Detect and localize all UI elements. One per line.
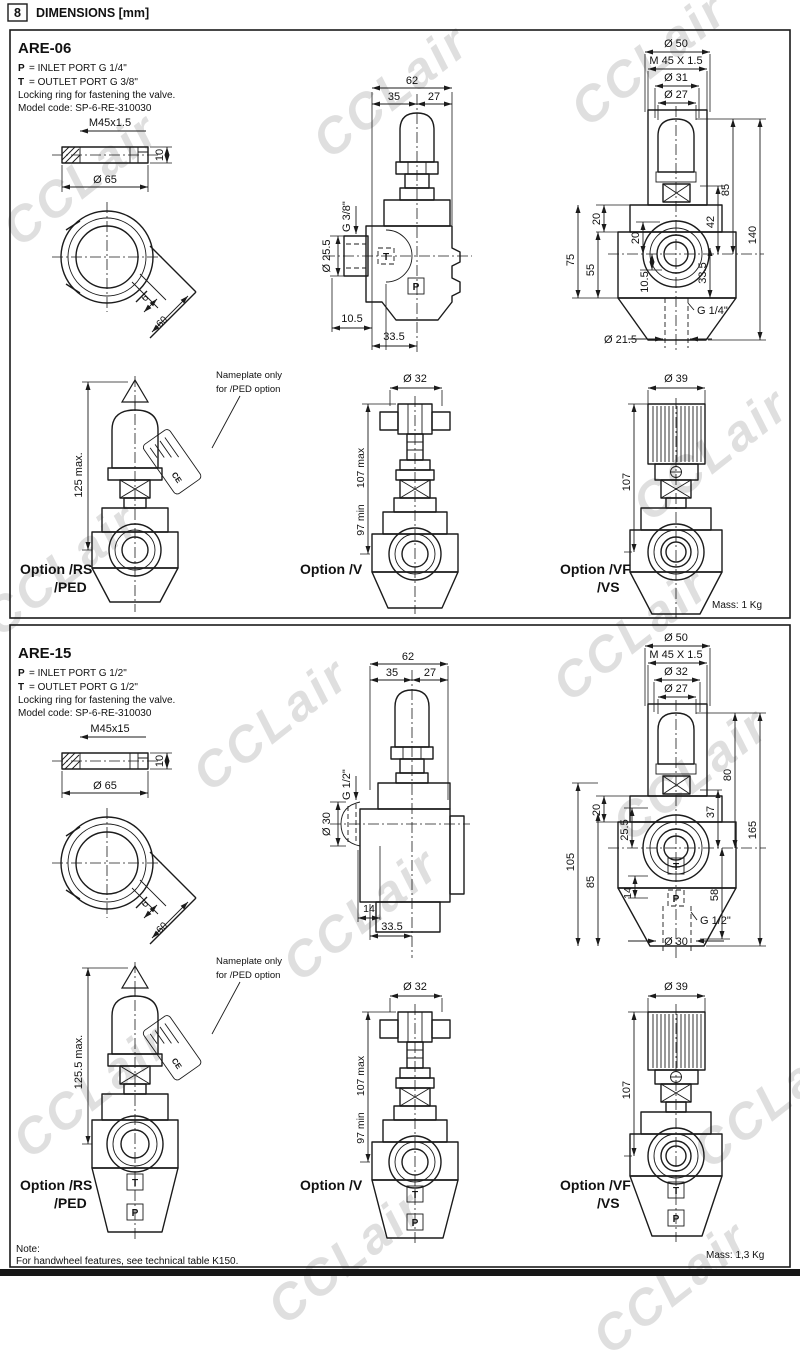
- dim-label: 85: [585, 876, 597, 888]
- dim-label: Ø 32: [403, 981, 427, 993]
- dim-label: 107: [621, 473, 633, 491]
- are15-option-rs-view: T P CE Nameplate only for /PED option 12…: [20, 956, 282, 1240]
- nameplate-callout: for /PED option: [216, 970, 280, 981]
- option-label: Option /V: [300, 561, 363, 577]
- dim-label: Ø 31: [664, 72, 688, 84]
- dim-label: 107 max: [355, 447, 367, 488]
- are06-side-view: 62 35 27 T P G 3/8" Ø 25.5 10.5 33.5: [321, 75, 472, 352]
- dim-label: Ø 30: [321, 812, 333, 836]
- dim-label: Ø 25.5: [321, 239, 333, 272]
- dim-label: Ø 30: [664, 936, 688, 948]
- dim-label: M45x15: [90, 723, 129, 735]
- dim-label: 140: [747, 226, 759, 244]
- dim-label: 27: [428, 91, 440, 103]
- port-t-key: T: [18, 77, 24, 88]
- dim-label: Ø 39: [664, 981, 688, 993]
- are06-option-v-view: Ø 32 107 max 97 min Option /V: [300, 373, 458, 614]
- are15-front-view: Ø 50 M 45 X 1.5 Ø 32 Ø 27 T P 80 37 16: [565, 632, 766, 958]
- dim-label: 10.5: [341, 313, 362, 325]
- dim-label: Ø 50: [664, 632, 688, 644]
- nameplate-callout: for /PED option: [216, 384, 280, 395]
- dim-label: M 45 X 1.5: [649, 55, 702, 67]
- option-label: Option /VF: [560, 561, 631, 577]
- dim-label: 107 max: [355, 1055, 367, 1096]
- are06-option-rs-view: CE Nameplate only for /PED option 125 ma…: [20, 370, 282, 612]
- port-p-symbol: P: [413, 282, 420, 293]
- option-label: /PED: [54, 579, 87, 595]
- dim-label: 80: [722, 769, 734, 781]
- dim-label: 37: [705, 806, 717, 818]
- model-code: Model code: SP-6-RE-310030: [18, 103, 152, 114]
- are15-ring-side-view: M45x15 Ø 65 10: [52, 723, 172, 798]
- port-t-symbol: T: [383, 252, 389, 263]
- are06-option-vf-view: Ø 39 107 Option /VF /VS Mass: 1 Kg: [560, 373, 762, 620]
- nameplate: CE: [142, 428, 203, 496]
- dim-label: 25.5: [619, 819, 631, 840]
- dim-label: 58: [709, 889, 721, 901]
- option-label: /VS: [597, 1195, 620, 1211]
- mass-label: Mass: 1,3 Kg: [706, 1250, 764, 1261]
- mass-label: Mass: 1 Kg: [712, 600, 762, 611]
- dim-label: G 3/8": [341, 201, 353, 232]
- dim-label: 20: [591, 213, 603, 225]
- nameplate: CE: [142, 1014, 203, 1082]
- option-label: Option /RS: [20, 561, 92, 577]
- bottom-note: Note: For handwheel features, see techni…: [16, 1244, 238, 1267]
- dim-label: 97 min: [355, 504, 367, 536]
- dim-label: 35: [386, 667, 398, 679]
- dim-label: 14: [363, 903, 375, 915]
- dim-label: 125 max.: [73, 452, 85, 497]
- page-bottom-bar: [0, 1269, 800, 1276]
- option-label: /VS: [597, 579, 620, 595]
- are06-ring-side-view: M45x1.5 Ø 65 10: [52, 117, 172, 192]
- nameplate-ce-mark: CE: [170, 471, 184, 486]
- port-p-symbol: P: [132, 1208, 139, 1219]
- dim-label: 55: [585, 264, 597, 276]
- dim-label: Ø 27: [664, 89, 688, 101]
- are15-title: ARE-15: [18, 645, 71, 662]
- port-t-desc: = OUTLET PORT G 3/8": [29, 77, 138, 88]
- dim-label: Ø 65: [93, 780, 117, 792]
- dim-label: 125.5 max.: [73, 1035, 85, 1089]
- are06-header-text: ARE-06 P = INLET PORT G 1/4" T = OUTLET …: [18, 40, 175, 114]
- are15-header-text: ARE-15 P = INLET PORT G 1/2" T = OUTLET …: [18, 645, 175, 719]
- option-label: Option /VF: [560, 1177, 631, 1193]
- dim-label: 105: [565, 853, 577, 871]
- port-t-key: T: [18, 682, 24, 693]
- dim-label: 33.5: [381, 921, 402, 933]
- port-t-symbol: T: [132, 1178, 138, 1189]
- dim-label: 75: [565, 254, 577, 266]
- port-p-symbol: P: [673, 894, 680, 905]
- dim-label: Ø 32: [403, 373, 427, 385]
- dim-label: 33.5: [383, 331, 404, 343]
- are15-ring-front-view: 6 60: [52, 808, 196, 944]
- dim-label: 35: [388, 91, 400, 103]
- nameplate-callout: Nameplate only: [216, 370, 282, 381]
- port-p-desc: = INLET PORT G 1/4": [29, 63, 127, 74]
- dim-label: Ø 32: [664, 666, 688, 678]
- port-p-desc: = INLET PORT G 1/2": [29, 668, 127, 679]
- page-number: 8: [14, 6, 21, 20]
- dim-label: G 1/2": [341, 769, 353, 800]
- option-label: Option /RS: [20, 1177, 92, 1193]
- dim-label: Ø 27: [664, 683, 688, 695]
- nameplate-ce-mark: CE: [170, 1057, 184, 1072]
- dim-label: M 45 X 1.5: [649, 649, 702, 661]
- option-label: Option /V: [300, 1177, 363, 1193]
- dim-label: 42: [705, 216, 717, 228]
- dim-label: 165: [747, 821, 759, 839]
- port-t-symbol: T: [673, 862, 679, 873]
- port-p-key: P: [18, 63, 25, 74]
- dim-label: 85: [720, 184, 732, 196]
- dim-label: G 1/4": [697, 305, 728, 317]
- page-header: 8 DIMENSIONS [mm]: [8, 4, 149, 21]
- port-p-key: P: [18, 668, 25, 679]
- dim-label: 33.5: [697, 262, 709, 283]
- dim-label: G 1/2": [700, 915, 731, 927]
- dim-label: 27: [424, 667, 436, 679]
- dim-label: 62: [402, 651, 414, 663]
- dim-label: Ø 39: [664, 373, 688, 385]
- note-text: For handwheel features, see technical ta…: [16, 1256, 238, 1267]
- technical-drawing-page: 8 DIMENSIONS [mm] ARE-06 P = INLET PORT …: [0, 0, 800, 1276]
- page-title: DIMENSIONS [mm]: [36, 6, 149, 20]
- dim-label: 62: [406, 75, 418, 87]
- nameplate-callout: Nameplate only: [216, 956, 282, 967]
- are15-side-view: 62 35 27 G 1/2" Ø 30 14 33.5: [321, 651, 470, 958]
- dim-label: M45x1.5: [89, 117, 131, 129]
- dim-label: 14: [622, 887, 634, 899]
- option-label: /PED: [54, 1195, 87, 1211]
- dim-label: 20: [591, 804, 603, 816]
- port-t-desc: = OUTLET PORT G 1/2": [29, 682, 138, 693]
- are06-title: ARE-06: [18, 40, 71, 57]
- dim-label: 10: [154, 149, 166, 161]
- dim-label: 10.5: [639, 271, 651, 292]
- locking-ring-note: Locking ring for fastening the valve.: [18, 695, 175, 706]
- are06-ring-front-view: 6 60: [52, 202, 196, 338]
- dim-label: 97 min: [355, 1112, 367, 1144]
- dim-label: 6: [139, 292, 151, 304]
- are15-option-vf-view: Ø 39 T P 107 Option /VF /VS Mass: 1,3 Kg: [560, 981, 764, 1261]
- note-title: Note:: [16, 1244, 40, 1255]
- dim-label: 107: [621, 1081, 633, 1099]
- dim-label: 20: [630, 232, 642, 244]
- dim-label: 6: [139, 898, 151, 910]
- locking-ring-note: Locking ring for fastening the valve.: [18, 90, 175, 101]
- are15-option-v-view: Ø 32 T P 107 max 97 min Option /V: [300, 981, 458, 1244]
- dim-label: Ø 65: [93, 174, 117, 186]
- dim-label: Ø 21.5: [604, 334, 637, 346]
- are06-front-view: Ø 50 M 45 X 1.5 Ø 31 Ø 27 85 42 140 20: [565, 38, 766, 352]
- model-code: Model code: SP-6-RE-310030: [18, 708, 152, 719]
- dim-label: 10: [154, 755, 166, 767]
- dim-label: Ø 50: [664, 38, 688, 50]
